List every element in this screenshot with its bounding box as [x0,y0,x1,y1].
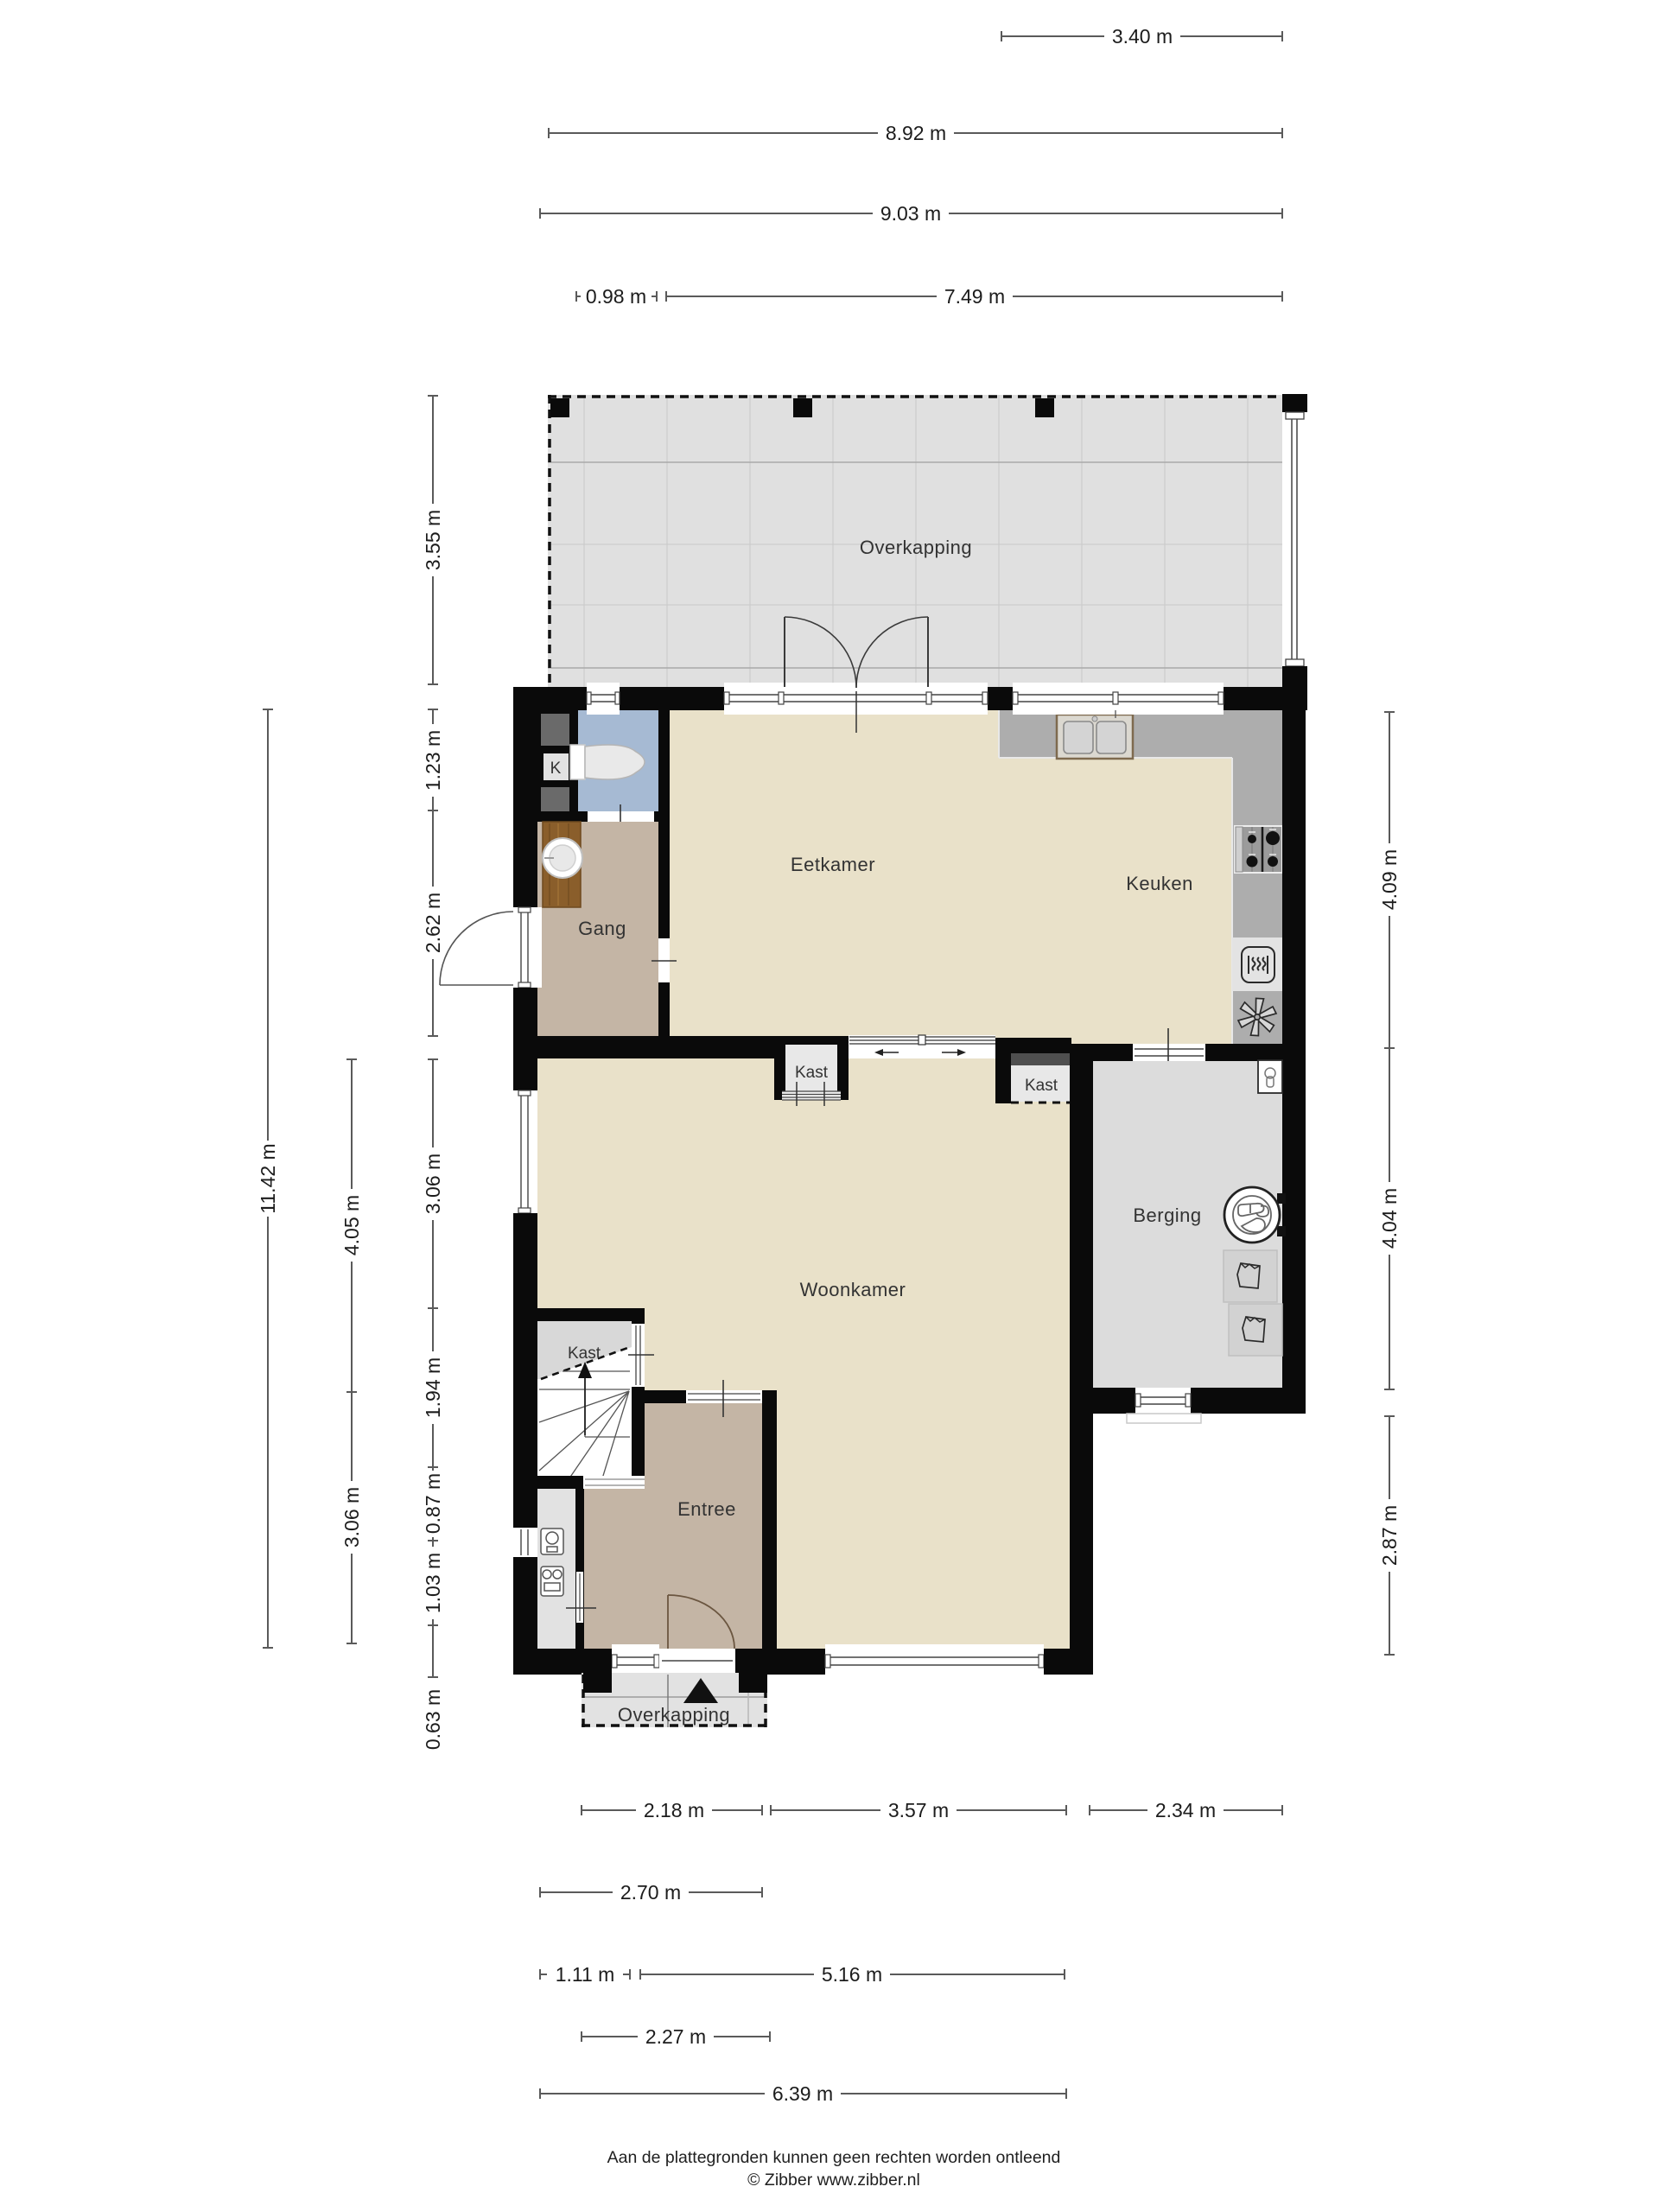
svg-text:6.39 m: 6.39 m [772,2082,833,2105]
svg-text:Keuken: Keuken [1126,873,1193,894]
svg-text:4.09 m: 4.09 m [1378,849,1401,910]
svg-text:2.62 m: 2.62 m [422,893,444,953]
svg-text:Kast: Kast [568,1344,601,1363]
svg-text:2.27 m: 2.27 m [645,2025,706,2048]
svg-text:© Zibber www.zibber.nl: © Zibber www.zibber.nl [747,2171,920,2190]
svg-text:Kast: Kast [1025,1077,1058,1095]
svg-text:3.06 m: 3.06 m [422,1154,444,1214]
svg-text:Overkapping: Overkapping [618,1704,730,1726]
svg-text:2.34 m: 2.34 m [1155,1799,1216,1821]
svg-text:3.40 m: 3.40 m [1112,25,1173,48]
svg-text:Overkapping: Overkapping [860,537,972,558]
svg-text:3.57 m: 3.57 m [888,1799,949,1821]
svg-text:Gang: Gang [578,918,626,939]
svg-text:1.11 m: 1.11 m [556,1963,615,1986]
svg-text:1.23 m: 1.23 m [422,730,444,791]
svg-text:2.70 m: 2.70 m [620,1881,681,1904]
svg-text:Berging: Berging [1133,1205,1201,1226]
svg-text:Aan de plattegronden kunnen ge: Aan de plattegronden kunnen geen rechten… [607,2148,1061,2167]
svg-text:0.87 m: 0.87 m [422,1473,444,1534]
svg-text:0.98 m: 0.98 m [586,285,646,308]
svg-text:8.92 m: 8.92 m [886,122,946,144]
svg-text:1.94 m: 1.94 m [422,1357,444,1418]
svg-text:5.16 m: 5.16 m [822,1963,882,1986]
svg-text:7.49 m: 7.49 m [944,285,1005,308]
svg-text:Entree: Entree [677,1498,736,1520]
svg-text:1.03 m: 1.03 m [422,1553,444,1613]
svg-text:2.87 m: 2.87 m [1378,1505,1401,1566]
svg-text:0.63 m: 0.63 m [422,1689,444,1750]
svg-text:4.05 m: 4.05 m [340,1195,363,1255]
svg-text:3.55 m: 3.55 m [422,510,444,570]
svg-text:Woonkamer: Woonkamer [800,1279,906,1300]
svg-text:Eetkamer: Eetkamer [791,854,875,875]
svg-text:9.03 m: 9.03 m [880,202,941,225]
svg-text:K: K [550,760,562,778]
svg-text:3.06 m: 3.06 m [340,1487,363,1548]
svg-text:4.04 m: 4.04 m [1378,1188,1401,1249]
svg-text:11.42 m: 11.42 m [257,1143,279,1213]
svg-text:2.18 m: 2.18 m [644,1799,704,1821]
svg-text:Kast: Kast [795,1064,829,1082]
